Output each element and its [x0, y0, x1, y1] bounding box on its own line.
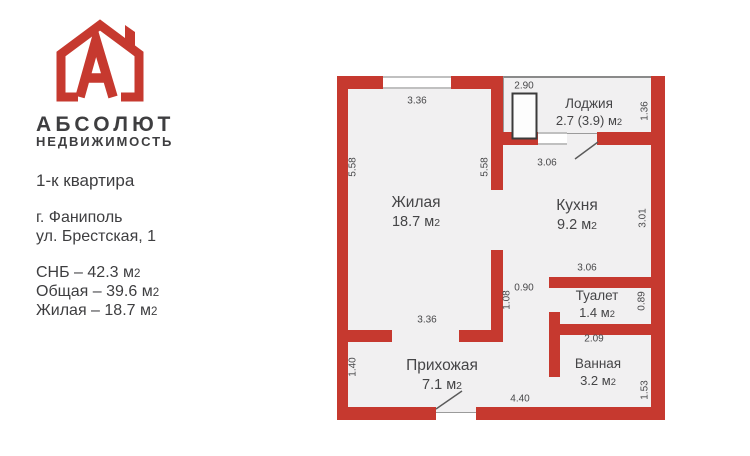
dim-bath-top: 2.09 [584, 334, 603, 345]
room-name: Лоджия [542, 95, 636, 113]
balcony-door-threshold [538, 132, 567, 145]
room-label-loggia: Лоджия 2.7 (3.9) м2 [542, 95, 636, 129]
room-area: 1.4 м2 [550, 305, 644, 322]
flyer-page: АБСОЛЮТ НЕДВИЖИМОСТЬ 1-к квартира г. Фан… [0, 0, 750, 456]
dim-passage-height: 1.08 [502, 290, 513, 309]
room-area: 2.7 (3.9) м2 [542, 113, 636, 130]
living-window [383, 76, 451, 89]
dim-toilet-right: 0.89 [637, 291, 648, 310]
dim-living-right: 5.58 [480, 157, 491, 176]
dim-hall-left: 1.40 [348, 357, 359, 376]
room-name: Жилая [366, 193, 466, 213]
loggia-door-swing-line [575, 142, 598, 159]
dim-passage-width: 0.90 [514, 283, 533, 294]
dim-living-top: 3.36 [407, 96, 426, 107]
dim-kitchen-right: 3.01 [638, 208, 649, 227]
room-name: Прихожая [384, 356, 500, 376]
dim-kitchen-bottom: 3.06 [577, 263, 596, 274]
room-label-hall: Прихожая 7.1 м2 [384, 356, 500, 395]
dim-bath-right: 1.53 [640, 380, 651, 399]
room-area: 7.1 м2 [384, 376, 500, 395]
room-area: 18.7 м2 [366, 213, 466, 232]
room-label-bath: Ванная 3.2 м2 [551, 355, 645, 389]
room-name: Туалет [550, 287, 644, 305]
room-name: Ванная [551, 355, 645, 373]
dim-loggia-bottom: 3.06 [537, 158, 556, 169]
loggia-window-icon [513, 94, 537, 139]
room-label-living: Жилая 18.7 м2 [366, 193, 466, 232]
room-area: 9.2 м2 [527, 216, 627, 235]
dim-living-left: 5.58 [348, 157, 359, 176]
dim-loggia-right: 1.36 [640, 101, 651, 120]
dim-loggia-top: 2.90 [514, 81, 533, 92]
room-label-toilet: Туалет 1.4 м2 [550, 287, 644, 321]
room-label-kitchen: Кухня 9.2 м2 [527, 196, 627, 235]
room-area: 3.2 м2 [551, 373, 645, 390]
room-name: Кухня [527, 196, 627, 216]
dim-hall-bottom: 4.40 [510, 394, 529, 405]
dim-hall-top: 3.36 [417, 315, 436, 326]
